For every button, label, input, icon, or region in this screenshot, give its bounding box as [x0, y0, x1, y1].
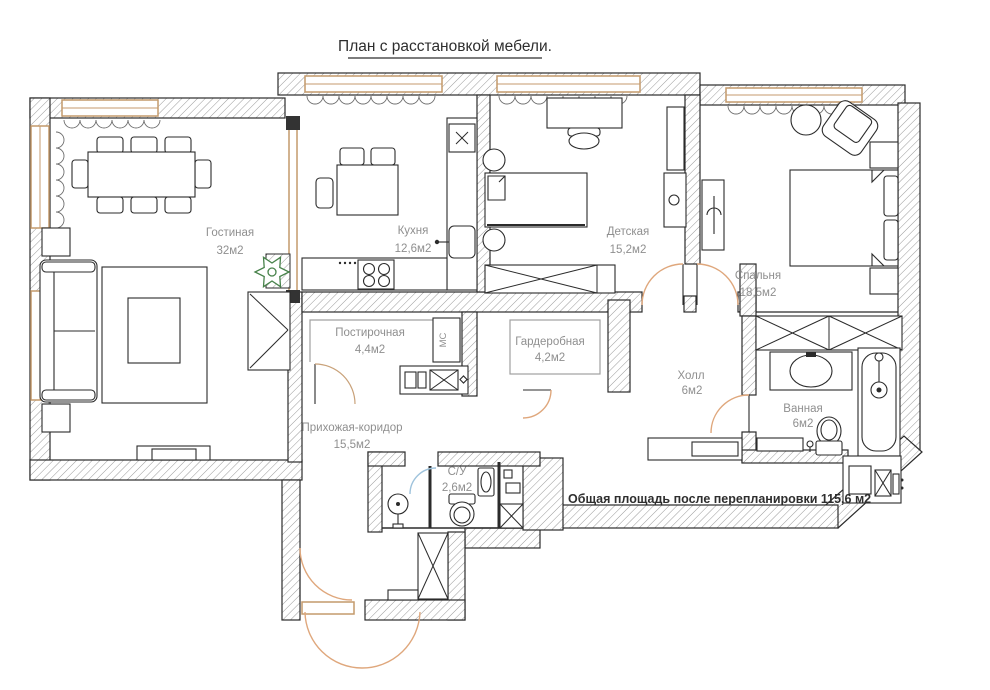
- entry-door-leaf: [302, 602, 354, 614]
- furniture-living-room: [40, 137, 290, 460]
- room-label-bedroom-area: 18,5м2: [740, 287, 777, 299]
- bathroom-sink: [770, 352, 852, 390]
- kids-wardrobe: [485, 265, 615, 293]
- sofa: [40, 260, 97, 402]
- partition-post-top: [286, 116, 300, 130]
- room-label-living-name: Гостиная: [206, 227, 254, 239]
- kids-dresser: [664, 173, 686, 227]
- room-label-bathroom-name: Ванная: [783, 403, 822, 415]
- washer-column: МС: [433, 318, 460, 362]
- washer-column-label: МС: [438, 332, 449, 347]
- pouf-bottom: [483, 229, 505, 251]
- bathtub: [858, 348, 900, 456]
- room-label-wc-name: С/У: [448, 466, 468, 478]
- room-label-hall-name: Холл: [677, 370, 704, 382]
- nightstand-top: [870, 142, 898, 168]
- room-label-kitchen-area: 12,6м2: [395, 243, 432, 255]
- room-label-hall-area: 6м2: [682, 385, 703, 397]
- floor-plan-page: План с расстановкой мебели.: [0, 0, 990, 690]
- bedroom-wardrobe: [756, 316, 902, 350]
- nightstand-bottom: [870, 268, 898, 294]
- room-label-bedroom-name: Спальня: [735, 270, 781, 282]
- entry-bench: [388, 590, 418, 600]
- pouf-top: [483, 149, 505, 171]
- kitchen-counter-bottom-with-stove: [302, 258, 447, 290]
- coffee-table: [128, 298, 180, 363]
- laundry-niche: [400, 366, 468, 394]
- room-label-kids-name: Детская: [607, 226, 650, 238]
- kids-bed: [485, 173, 587, 227]
- room-label-corridor-area: 15,5м2: [334, 439, 371, 451]
- hall-console: [648, 438, 742, 460]
- floor-plan-svg: План с расстановкой мебели.: [0, 0, 990, 690]
- side-table-top: [42, 228, 70, 256]
- kitchen-table-with-chairs: [316, 148, 398, 215]
- tv-console: [137, 446, 210, 460]
- wc-sink: [478, 468, 494, 496]
- room-label-bathroom-area: 6м2: [793, 418, 814, 430]
- bedroom-dresser: [702, 180, 724, 250]
- room-label-wc-area: 2,6м2: [442, 482, 472, 494]
- kids-room-door: [642, 264, 683, 305]
- laundry-door: [315, 364, 355, 404]
- entry-closet: [418, 533, 448, 599]
- toilet: [816, 417, 842, 455]
- room-label-laundry-name: Постирочная: [335, 327, 405, 339]
- room-label-wardrobe-name: Гардеробная: [515, 336, 585, 348]
- furniture-bathroom: [757, 348, 904, 503]
- room-label-kids-area: 15,2м2: [610, 244, 647, 256]
- wardrobe-room-door: [523, 390, 551, 418]
- bedroom-door: [697, 264, 738, 305]
- dining-table-with-chairs: [72, 137, 211, 213]
- room-label-kitchen-name: Кухня: [398, 225, 429, 237]
- room-label-living-area: 32м2: [216, 245, 243, 257]
- furniture-kids-room: [483, 98, 686, 293]
- total-area-note: Общая площадь после перепланировки 115,6…: [568, 492, 871, 506]
- plan-title: План с расстановкой мебели.: [338, 38, 552, 55]
- double-bed: [790, 170, 898, 266]
- side-table-bottom: [42, 404, 70, 432]
- room-label-wardrobe-area: 4,2м2: [535, 352, 565, 364]
- shower-door: [410, 468, 436, 494]
- wc-washing-machine: [500, 470, 523, 528]
- shower: [388, 494, 408, 528]
- furniture-kitchen: [302, 118, 477, 290]
- room-label-laundry-area: 4,4м2: [355, 344, 385, 356]
- kids-shelf-tall: [667, 107, 684, 170]
- kids-desk-with-chair: [547, 98, 622, 149]
- room-label-corridor-name: Прихожая-коридор: [302, 422, 403, 434]
- cabinet: [248, 292, 290, 370]
- round-table: [791, 105, 821, 135]
- bathroom-door: [711, 395, 749, 433]
- wc-toilet: [449, 494, 475, 526]
- vestibule-door: [300, 548, 352, 600]
